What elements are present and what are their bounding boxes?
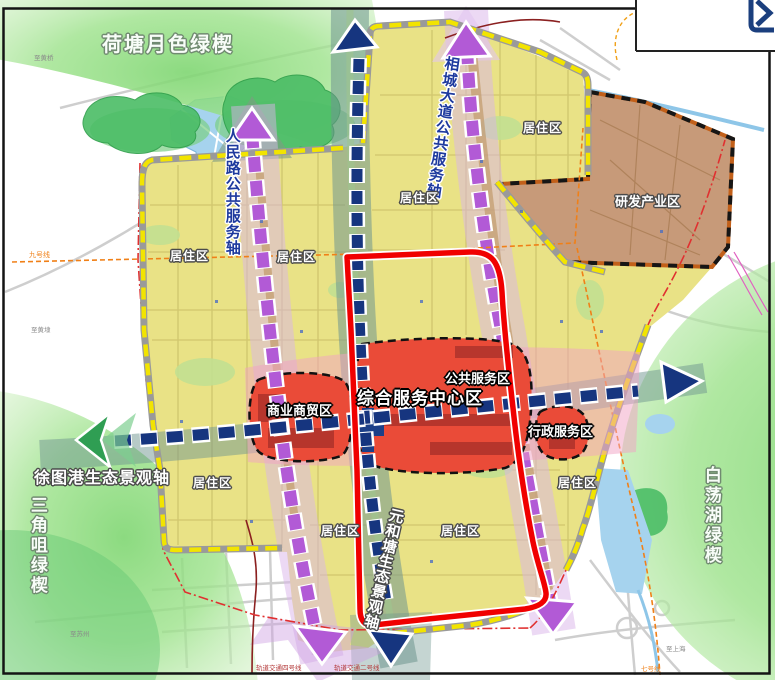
planning-map: 荷塘月色绿楔 人民路公共服务轴 相城大道公共服务轴 元和塘生态景观轴 徐图港生态… bbox=[0, 0, 775, 680]
admin-blob bbox=[536, 406, 589, 459]
plan-map-svg bbox=[0, 0, 775, 680]
corner-widget bbox=[636, 0, 775, 51]
green-wedge-north bbox=[0, 0, 383, 156]
